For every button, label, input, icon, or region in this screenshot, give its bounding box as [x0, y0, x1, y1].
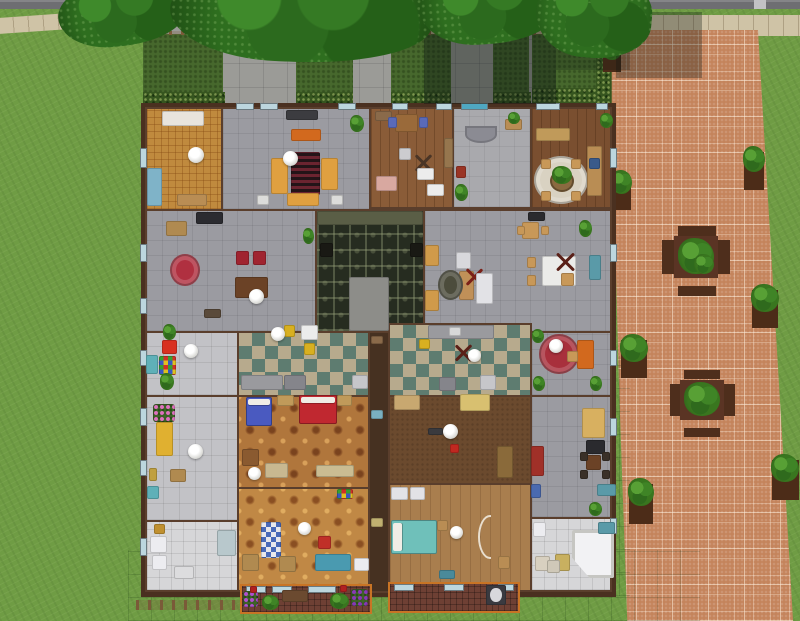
porchL-bush-1[interactable] — [262, 595, 279, 610]
kids-desk-2[interactable] — [279, 556, 296, 572]
window-bottom-5 — [444, 584, 464, 591]
bedroom2-nightstand[interactable] — [437, 520, 448, 531]
lounge-aquarium-teal[interactable] — [147, 486, 159, 499]
atrium-pillar-2 — [410, 243, 423, 257]
kids-desk-1[interactable] — [242, 554, 259, 571]
kitchen2-ceiling-lamp[interactable] — [468, 349, 481, 362]
bedroom2-ceiling-lamp[interactable] — [450, 526, 463, 539]
dining-desk[interactable] — [587, 146, 602, 196]
lounge-end-table[interactable] — [170, 469, 186, 482]
bathL-toilet[interactable] — [150, 536, 167, 553]
picnic-bench-b-top[interactable] — [684, 370, 720, 379]
bath1-art-counter[interactable] — [162, 111, 204, 126]
office-desk-pink[interactable] — [376, 176, 397, 191]
kitchen1-stove[interactable] — [284, 375, 306, 390]
greatR-ceiling-fan-2[interactable] — [552, 250, 578, 274]
picnic-table-a-plant-2[interactable] — [694, 254, 714, 274]
livingR-plant[interactable] — [589, 502, 602, 516]
greatL-armchair-2[interactable] — [253, 251, 266, 265]
greatR-teal-cabinet[interactable] — [589, 255, 601, 280]
rec-ceiling-lamp[interactable] — [443, 424, 458, 439]
rec-rug-tan — [394, 395, 420, 410]
dining-sideboard[interactable] — [536, 128, 570, 141]
livingR-dining-table[interactable] — [586, 455, 601, 470]
greatR-chair-s4[interactable] — [527, 275, 536, 286]
hall-console-plant[interactable] — [508, 112, 520, 124]
atrium-walkway — [349, 277, 389, 331]
window-top-4 — [392, 103, 408, 110]
planter-bush-4[interactable] — [751, 284, 779, 312]
room-kids-room — [237, 487, 370, 592]
kids-rainbow-rug — [337, 489, 353, 499]
living1-sofa-right[interactable] — [321, 158, 338, 190]
office-chair-blue-1[interactable] — [388, 117, 397, 128]
window-top-2 — [260, 103, 278, 110]
window-right-1 — [610, 148, 617, 168]
window-right-3 — [610, 350, 617, 366]
bedroom1-wardrobe[interactable] — [242, 449, 259, 466]
dining-centerpiece-plant[interactable] — [552, 166, 572, 184]
dining-chair-1[interactable] — [541, 159, 551, 169]
kitchen1-counter[interactable] — [241, 375, 283, 390]
bedroom2-dresser-white-2[interactable] — [410, 487, 425, 500]
bedroom1-dresser-2[interactable] — [337, 395, 352, 406]
lounge-ceiling-lamp[interactable] — [188, 444, 203, 459]
kitchen2-counter-items[interactable] — [449, 327, 461, 336]
bedroom2-mat-teal — [439, 570, 455, 579]
nursery-toybox[interactable] — [162, 340, 177, 354]
kids-chair-red[interactable] — [318, 536, 331, 549]
room-hall-strip — [368, 331, 390, 593]
greatL-side-table[interactable] — [166, 221, 187, 236]
bathR-frame-2 — [547, 560, 560, 573]
rec-cabinet[interactable] — [497, 446, 513, 478]
rec-dumbbell[interactable] — [428, 428, 443, 435]
bathL-shower[interactable] — [217, 530, 236, 556]
living1-plant[interactable] — [350, 115, 364, 132]
bedroom1-dresser-1[interactable] — [277, 395, 294, 406]
greatL-armchair-1[interactable] — [236, 251, 249, 265]
porchL-flowers-purple-2[interactable] — [351, 589, 368, 606]
window-left-2 — [140, 244, 147, 262]
fence-bottom-left — [136, 600, 242, 610]
greatR-chair-s3[interactable] — [527, 257, 536, 268]
crosswalk-stripe — [754, 0, 766, 9]
nursery-plant-top[interactable] — [163, 324, 176, 340]
office-game-table[interactable] — [395, 114, 418, 132]
livingR-counter-teal[interactable] — [597, 484, 616, 496]
greatR-chair-tan[interactable] — [561, 273, 574, 286]
study-ceiling-lamp[interactable] — [549, 339, 563, 353]
porchL-pot-red-1[interactable] — [250, 586, 257, 593]
bedroom1-bench-mat — [265, 463, 288, 478]
bath1-ceiling-lamp[interactable] — [188, 147, 204, 163]
bedroom1-ceiling-lamp[interactable] — [248, 467, 261, 480]
dining-computer[interactable] — [589, 158, 600, 169]
porchL-flowers-purple-1[interactable] — [243, 591, 258, 607]
front-door-double[interactable] — [461, 103, 488, 110]
window-top-7 — [596, 103, 608, 110]
greatR-plant[interactable] — [579, 220, 592, 237]
office-bookshelf[interactable] — [444, 138, 453, 168]
office-papers-2[interactable] — [427, 184, 444, 196]
greatR-wall-tv[interactable] — [528, 212, 545, 221]
study-plant-2[interactable] — [533, 376, 545, 391]
window-left-1 — [140, 148, 147, 168]
window-top-6 — [536, 103, 560, 110]
bedroom2-dresser-bottom[interactable] — [498, 556, 510, 569]
office-papers-1[interactable] — [417, 168, 434, 180]
planter-bush-7[interactable] — [771, 454, 799, 482]
greatL-plant[interactable] — [303, 228, 314, 244]
nursery-ceiling-lamp[interactable] — [184, 344, 198, 358]
kids-dresser-teal[interactable] — [315, 554, 351, 571]
atrium-pillar-1 — [320, 243, 333, 257]
hall-half-rug — [465, 126, 497, 143]
picnic-bench-b-right[interactable] — [724, 384, 735, 416]
livingR-chair-dark-3[interactable] — [580, 470, 588, 479]
livingR-item-blue[interactable] — [531, 484, 541, 498]
living1-fireplace[interactable] — [286, 110, 318, 120]
greatR-dark-round-rug — [438, 270, 463, 300]
window-right-4 — [610, 418, 617, 436]
kitchen1-chair-yellow-1[interactable] — [284, 325, 295, 337]
hallstrip-poster-1 — [371, 410, 383, 419]
livingR-bookcase-red[interactable] — [531, 446, 544, 476]
dining-plant[interactable] — [600, 113, 613, 128]
planter-bush-6[interactable] — [628, 478, 654, 506]
bath1-dresser[interactable] — [177, 194, 207, 206]
livingR-chair-dark-1[interactable] — [580, 452, 588, 461]
kitchen2-chair-yellow[interactable] — [419, 339, 430, 349]
porchR-grill[interactable] — [486, 585, 506, 605]
greatL-piano[interactable] — [196, 212, 223, 224]
bedroom2-bed-teal[interactable] — [391, 520, 437, 554]
livingR-chair-dark-4[interactable] — [602, 470, 610, 479]
kitchen1-table[interactable] — [301, 325, 318, 340]
nursery-plant-bottom[interactable] — [160, 373, 174, 390]
hallstrip-shelf[interactable] — [371, 336, 383, 344]
bedroom1-bed-red[interactable] — [299, 395, 337, 424]
hall-plant[interactable] — [455, 184, 468, 201]
office-chair-white[interactable] — [399, 148, 411, 160]
greatL-door-mat — [204, 309, 221, 318]
picnic-bench-a-left[interactable] — [662, 240, 674, 274]
kids-ceiling-lamp[interactable] — [298, 522, 311, 535]
dining-chair-4[interactable] — [571, 191, 581, 201]
greatR-chair-s2[interactable] — [541, 226, 549, 235]
bathR-counter-teal[interactable] — [598, 522, 615, 534]
kitchen2-counter[interactable] — [428, 325, 494, 339]
window-bottom-4 — [394, 584, 414, 591]
bathL-sink-counter[interactable] — [174, 566, 194, 579]
study-plant-3[interactable] — [590, 376, 602, 391]
rec-mat-yellow — [460, 394, 490, 411]
greatR-chair-s1[interactable] — [517, 226, 525, 235]
picnic-bench-a-bottom[interactable] — [678, 286, 716, 296]
porchL-bush-2[interactable] — [330, 593, 349, 609]
kitchen2-stove[interactable] — [439, 377, 456, 391]
window-left-6 — [140, 460, 147, 476]
lounge-flowers-pink[interactable] — [153, 404, 175, 422]
bathL-bidet[interactable] — [152, 555, 167, 570]
office-chair-blue-2[interactable] — [419, 117, 428, 128]
porchL-pot-red-2[interactable] — [340, 585, 347, 592]
greatL-ceiling-lamp[interactable] — [249, 289, 264, 304]
window-bottom-3 — [308, 586, 336, 593]
road-top-right — [630, 0, 800, 9]
hallstrip-poster-2 — [371, 518, 383, 527]
atrium-planter-strip — [317, 211, 423, 225]
bedroom2-dresser-white-1[interactable] — [391, 487, 408, 500]
study-plant-1[interactable] — [532, 329, 544, 343]
bathR-toilet[interactable] — [533, 522, 546, 537]
window-top-1 — [236, 103, 254, 110]
greatL-red-round-rug — [170, 254, 200, 286]
planter-bush-3[interactable] — [743, 146, 765, 172]
greatR-lounge-white[interactable] — [476, 273, 493, 304]
living1-console-table[interactable] — [291, 129, 321, 141]
livingR-chair-dark-2[interactable] — [602, 452, 610, 461]
greatR-bench-1[interactable] — [425, 245, 439, 266]
window-top-3 — [338, 103, 356, 110]
living1-loveseat[interactable] — [287, 193, 319, 206]
porchL-dirt-patch — [282, 590, 308, 602]
study-desk-orange[interactable] — [577, 340, 594, 369]
window-right-2 — [610, 244, 617, 262]
living1-endtable-2[interactable] — [331, 195, 343, 205]
bedroom1-bed-blue[interactable] — [246, 397, 272, 426]
kitchen1-fridge[interactable] — [352, 375, 368, 389]
kids-potty[interactable] — [354, 558, 369, 571]
nursery-crib[interactable] — [146, 355, 158, 374]
bathL-wall-art — [154, 524, 165, 534]
kitchen2-fridge[interactable] — [480, 375, 496, 390]
dining-chair-3[interactable] — [541, 191, 551, 201]
hall-red-chair[interactable] — [456, 166, 466, 178]
picnic-table-b-plant[interactable] — [684, 382, 720, 416]
window-left-7 — [140, 538, 147, 556]
bedroom1-big-mat — [316, 465, 354, 477]
living1-endtable-1[interactable] — [257, 195, 269, 205]
window-left-5 — [140, 408, 147, 426]
dining-chair-2[interactable] — [571, 159, 581, 169]
livingR-sofa-tan[interactable] — [582, 408, 605, 438]
kids-bunkbed-checker[interactable] — [261, 522, 281, 558]
picnic-bench-a-right[interactable] — [718, 240, 730, 274]
greatR-bench-2[interactable] — [425, 290, 439, 311]
window-top-5 — [436, 103, 452, 110]
scene — [0, 0, 800, 621]
kitchen1-ceiling-lamp[interactable] — [271, 327, 285, 341]
picnic-bench-b-bottom[interactable] — [684, 428, 720, 437]
picnic-bench-a-top[interactable] — [678, 226, 716, 236]
planter-bush-5[interactable] — [620, 334, 648, 362]
bath1-sink-counter[interactable] — [147, 168, 162, 206]
living1-ceiling-lamp[interactable] — [283, 151, 298, 166]
lounge-sofa-yellow[interactable] — [156, 422, 173, 456]
lounge-wall-art — [149, 468, 157, 481]
kitchen1-chair-yellow-2[interactable] — [304, 343, 315, 355]
study-chair[interactable] — [567, 351, 578, 362]
rec-toy-red[interactable] — [450, 444, 459, 453]
window-left-3 — [140, 298, 147, 314]
